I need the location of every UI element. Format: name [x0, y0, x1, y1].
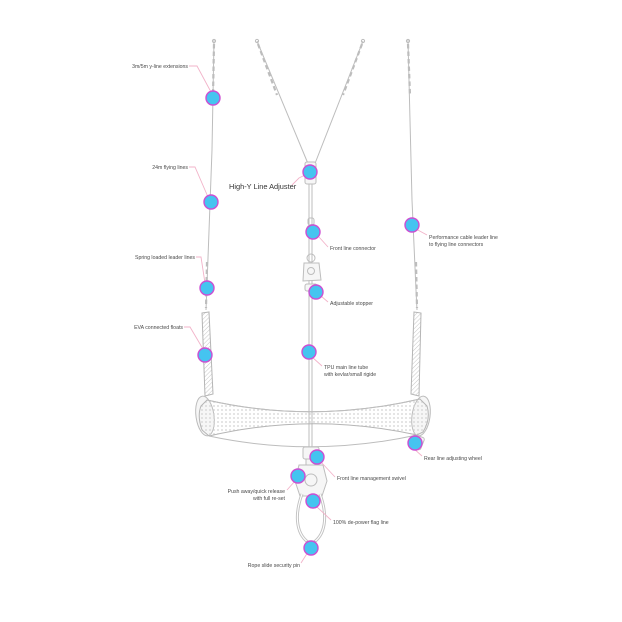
label-flying-lines: 24m flying lines: [152, 165, 188, 171]
spring-leader-right: [416, 262, 417, 308]
label-y-line-extensions: 3m/5m y-line extensions: [132, 64, 188, 70]
dot-floats: [198, 348, 212, 362]
label-spring-leaders: Spring loaded leader lines: [135, 255, 195, 261]
dot-adjustable-stopper: [309, 285, 323, 299]
dot-high-y-adjuster: [303, 165, 317, 179]
dot-flying-lines: [204, 195, 218, 209]
left-flying-line: [206, 40, 214, 310]
dot-rear-adjusting: [408, 436, 422, 450]
label-main-line-tube-1: TPU main line tube: [324, 365, 368, 371]
right-float: [411, 312, 421, 396]
label-quick-release-1: Push away/quick release: [228, 489, 285, 495]
dot-front-line-connector: [306, 225, 320, 239]
dot-swivel: [310, 450, 324, 464]
dot-spring-leaders: [200, 281, 214, 295]
line-knots: [258, 44, 277, 95]
label-high-y-adjuster: High-Y Line Adjuster: [229, 182, 297, 191]
kite-bar-diagram: 3m/5m y-line extensions 24m flying lines…: [0, 0, 622, 622]
label-adjustable-stopper: Adjustable stopper: [330, 301, 373, 307]
label-swivel: Front line management swivel: [337, 476, 406, 482]
label-quick-release-2: with full re-set: [253, 496, 286, 502]
label-leader-lines-1: Performance cable leader line: [429, 235, 498, 241]
label-leader-lines-2: to flying line connectors: [429, 242, 484, 248]
dot-y-line-extensions: [206, 91, 220, 105]
diagram-canvas: 3m/5m y-line extensions 24m flying lines…: [0, 0, 622, 622]
center-depower-line: [309, 184, 312, 448]
line-knots: [343, 44, 362, 95]
label-floats: EVA connected floats: [134, 325, 183, 331]
dot-security-pin: [304, 541, 318, 555]
label-flag-line: 100% de-power flag line: [333, 520, 389, 526]
dot-quick-release: [291, 469, 305, 483]
right-flying-line: [408, 40, 417, 310]
dot-main-line-tube: [302, 345, 316, 359]
dot-leader-lines-right: [405, 218, 419, 232]
control-bar: [199, 399, 428, 447]
label-rear-adjusting: Rear line adjusting wheel: [424, 456, 482, 462]
dot-flag-line: [306, 494, 320, 508]
label-main-line-tube-2: with kevlar/small rigide: [324, 372, 376, 378]
label-security-pin: Rope slide security pin: [248, 563, 300, 569]
label-front-line-connector: Front line connector: [330, 246, 376, 252]
